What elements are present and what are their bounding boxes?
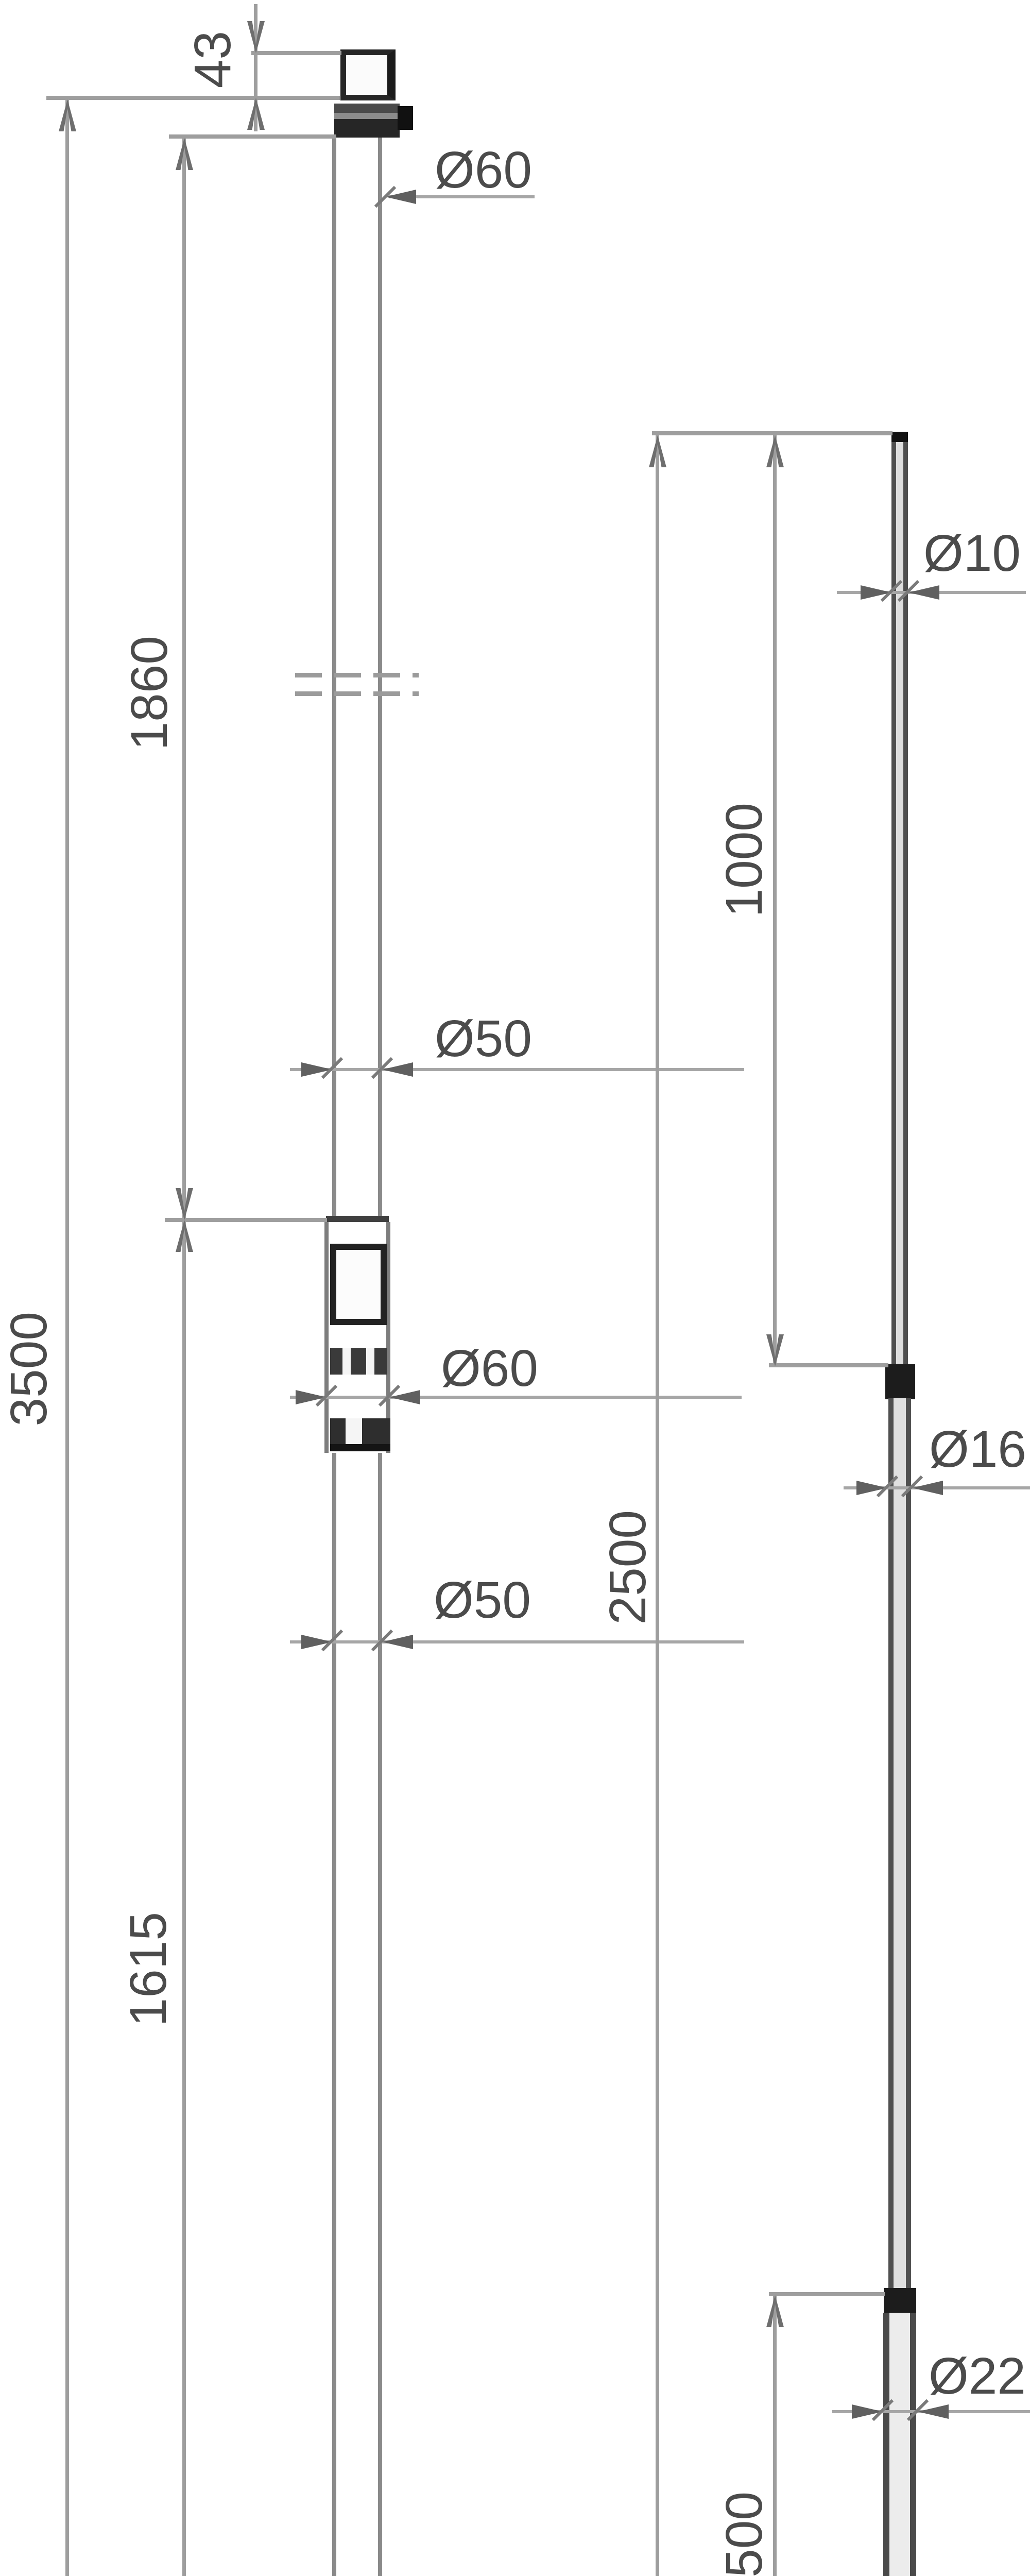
leader-dia-50-lower — [290, 1640, 744, 1643]
rod-tip-cap — [891, 432, 908, 442]
dim-text-1615: 1615 — [123, 1912, 174, 2026]
dim-text-3500: 3500 — [3, 1312, 55, 1426]
dim-line-1860 — [182, 138, 186, 1220]
dim-line-500 — [773, 2295, 777, 2576]
dim-text-1000: 1000 — [718, 803, 770, 917]
rod-section-dia16 — [888, 1398, 911, 2290]
rod-collar-upper — [885, 1364, 915, 1399]
ext-line-rod-top — [652, 431, 892, 435]
ext-line-top-overall — [46, 96, 340, 100]
dim-text-500: 500 — [718, 2492, 770, 2576]
dim-text-2500: 2500 — [602, 1510, 654, 1624]
coupling-top-edge — [326, 1216, 389, 1222]
ext-line-rod-joint-lower — [769, 2292, 885, 2296]
rod-section-dia22 — [883, 2313, 916, 2576]
technical-drawing-canvas: 3500 1860 1615 43 Ø60 Ø50 Ø60 Ø50 2500 1… — [0, 0, 1030, 2576]
dim-text-1860: 1860 — [124, 636, 175, 750]
dim-text-43: 43 — [187, 31, 238, 88]
dia-label-50-upper: Ø50 — [435, 1013, 532, 1064]
leader-dia-60-coupling — [290, 1396, 742, 1399]
dia-label-22: Ø22 — [929, 2350, 1026, 2402]
break-line-lower — [295, 691, 419, 696]
dim-line-2500 — [656, 435, 659, 2576]
ext-line-head-top — [251, 51, 341, 55]
dia-label-10: Ø10 — [923, 528, 1021, 579]
dia-label-60-coupling: Ø60 — [441, 1343, 538, 1394]
ext-line-coupling — [165, 1218, 327, 1222]
leader-dia-50-upper — [290, 1068, 744, 1071]
dim-line-3500 — [65, 99, 69, 2576]
ext-line-upper-section — [169, 134, 336, 139]
dim-line-1000 — [773, 435, 777, 1366]
rod-collar-lower — [884, 2288, 916, 2314]
clamp-block — [334, 104, 400, 138]
dia-label-16: Ø16 — [929, 1423, 1026, 1475]
coupling-clamp-band-upper — [330, 1348, 387, 1375]
dia-label-50-lower: Ø50 — [434, 1574, 531, 1626]
coupling-box — [330, 1244, 387, 1325]
clamp-bolt-nub — [398, 106, 413, 130]
break-line-upper — [295, 673, 419, 677]
ext-line-rod-joint-upper — [769, 1363, 888, 1367]
rod-holder-head — [340, 49, 396, 100]
rod-section-dia10 — [891, 432, 908, 1365]
dia-label-60-top: Ø60 — [435, 144, 532, 196]
coupling-clamp-band-lower — [330, 1418, 390, 1451]
dim-line-1615 — [182, 1220, 186, 2576]
